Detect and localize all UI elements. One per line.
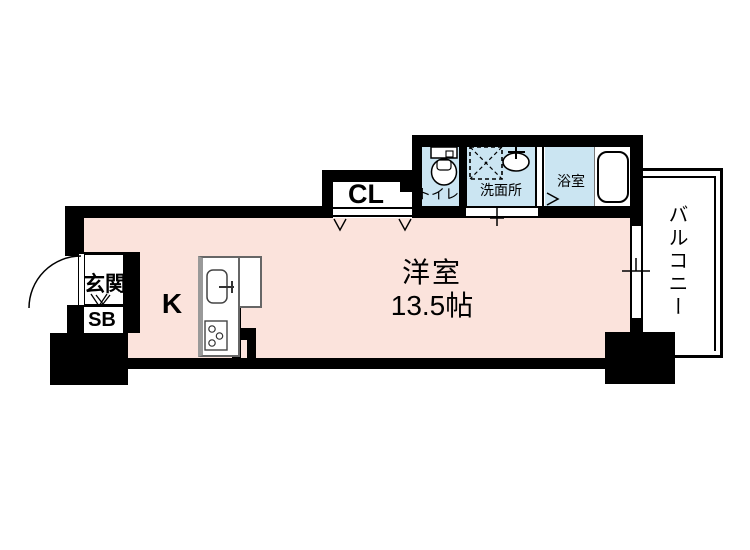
pillar-bottom-left bbox=[50, 333, 128, 385]
main-room-label: 洋室 13.5帖 bbox=[332, 259, 532, 320]
entrance-sb-divider bbox=[84, 304, 123, 307]
floor-plan: 洋室 13.5帖 K CL 玄関 SB トイレ 洗面所 浴室 バルコニー bbox=[0, 0, 750, 550]
wall-top-main bbox=[65, 206, 333, 218]
balcony-label: バルコニー bbox=[666, 204, 686, 344]
main-room-size: 13.5帖 bbox=[332, 292, 532, 320]
wall-bottom bbox=[128, 358, 605, 369]
kitchen-stub-c bbox=[247, 340, 256, 358]
bathroom-label: 浴室 bbox=[531, 174, 611, 188]
wall-right-upper bbox=[630, 135, 643, 226]
balcony-top-inner bbox=[643, 176, 716, 178]
wall-right-lower bbox=[630, 318, 643, 333]
entrance-label: 玄関 bbox=[65, 274, 145, 295]
balcony-bottom bbox=[643, 355, 723, 358]
balcony-top-outer bbox=[643, 168, 723, 171]
pillar-bottom-right bbox=[605, 332, 675, 384]
shoe-box-label: SB bbox=[62, 310, 142, 330]
wall-block-top bbox=[412, 135, 643, 147]
kitchen-stub-b bbox=[241, 328, 256, 340]
entrance-top-line bbox=[84, 252, 123, 255]
kitchen-counter-top bbox=[238, 256, 262, 308]
balcony-right-outer bbox=[720, 168, 723, 358]
main-room-name: 洋室 bbox=[332, 259, 532, 287]
wall-under-bathroom bbox=[538, 206, 643, 218]
balcony-right-inner bbox=[714, 176, 716, 351]
washroom-label: 洗面所 bbox=[461, 183, 541, 197]
closet-label: CL bbox=[326, 181, 406, 208]
wall-block-left bbox=[412, 135, 422, 218]
washroom-sliding-door bbox=[466, 206, 538, 218]
balcony-window bbox=[630, 226, 643, 318]
